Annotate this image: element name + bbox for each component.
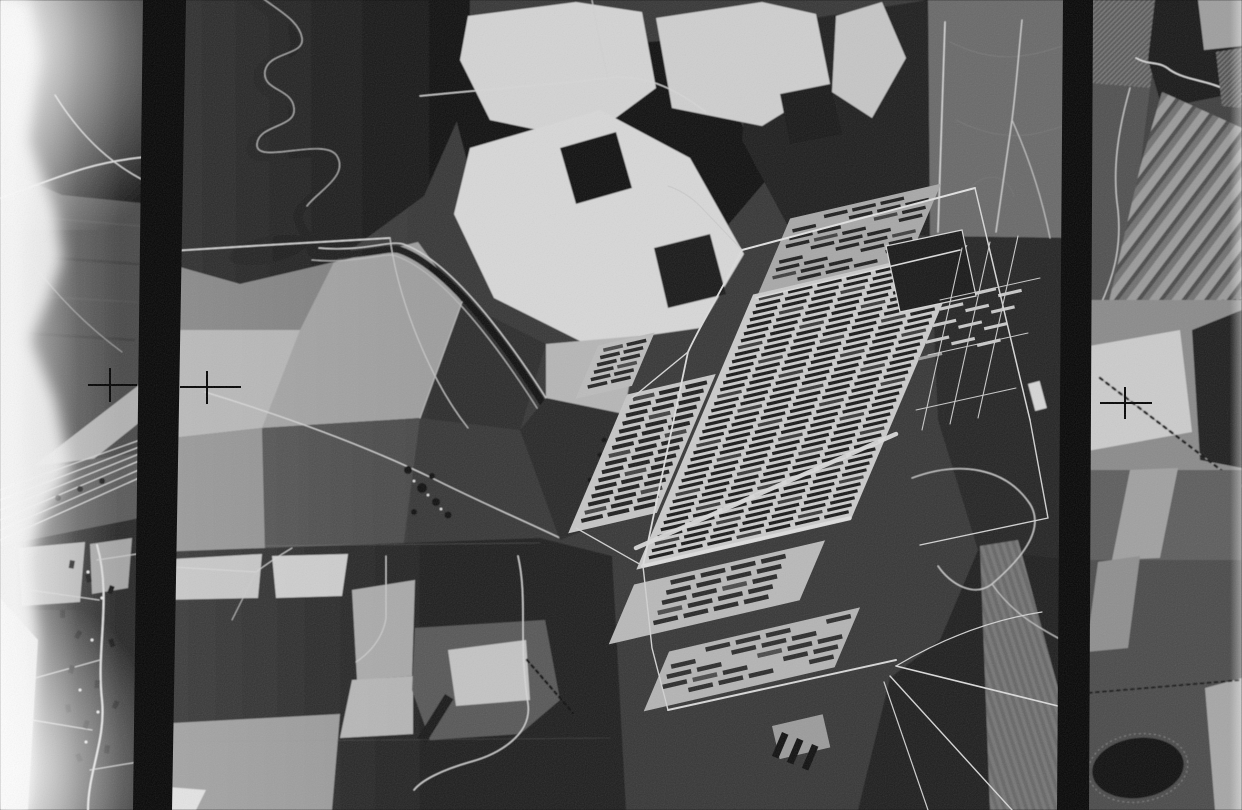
film-grain-overlay bbox=[0, 0, 1242, 810]
aerial-photo-svg: Black-and-white aerial reconnaissance ph… bbox=[0, 0, 1242, 810]
photo-scene bbox=[0, 0, 1242, 810]
reconnaissance-photograph: Black-and-white aerial reconnaissance ph… bbox=[0, 0, 1242, 810]
